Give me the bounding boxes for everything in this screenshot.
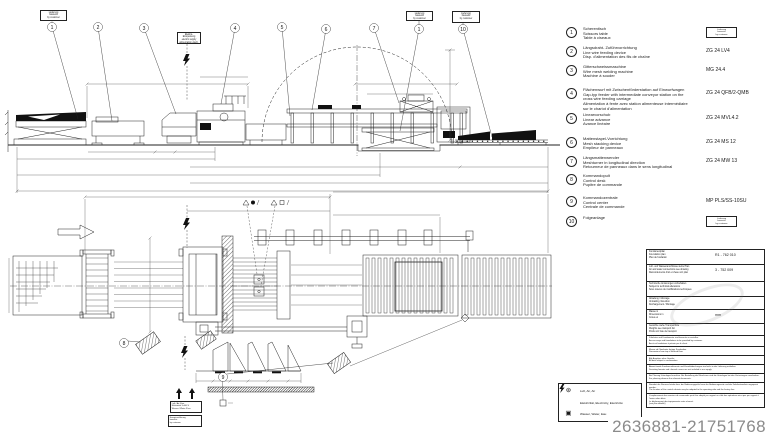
fine-print-note: Masse ab Oberkante fertiger Fussboden. D… xyxy=(647,347,764,356)
legend-item-number: 7 xyxy=(566,156,577,167)
legend-item-number: 9 xyxy=(566,196,577,207)
legend-item-type: ZG 24 LV4 xyxy=(706,48,730,54)
scissor-lift-pit xyxy=(358,128,440,152)
legend-item-number: 4 xyxy=(566,88,577,99)
legend-item: 4 Flächenwurf mit Zwischenförderstation … xyxy=(566,88,764,112)
legend-item-desc: Kommandopult Control desk Pupitre de com… xyxy=(583,174,691,188)
fine-print-note: Standort der Steuerschränke bzw. der Bed… xyxy=(647,383,764,394)
energy-note-box: Energiezuführung bauseits by customer xyxy=(168,415,202,427)
utility-label: Luft, Air, Air xyxy=(580,389,595,393)
legend-item-desc: Gitterschweissmaschine Wire mesh welding… xyxy=(583,65,691,79)
utility-label: Elektrizität, Electricity, Electricité xyxy=(580,401,623,405)
legend-item-type: ZG 24 MVL4.2 xyxy=(706,115,739,121)
title-block-row: Fundamentplan Foundation plan Plan de fo… xyxy=(647,250,764,265)
legend-item-number: 8 xyxy=(566,174,577,185)
legend-item-desc: Folgeanlage xyxy=(583,216,691,227)
air-icon: ⊛ xyxy=(564,388,573,395)
fine-print-note: Abweichende Fundamentformate und Kanalab… xyxy=(647,365,764,374)
field-label: Fundamentplan Foundation plan Plan de fo… xyxy=(649,251,715,260)
legend-item-type: ZG 24 MW 13 xyxy=(706,158,737,164)
control-desk-plan xyxy=(136,331,351,374)
legend-item: 9 Kommandozentrale Control center Centra… xyxy=(566,196,764,210)
legend-item-desc: Mattenstapel-Vorrichtung Mesh stacking d… xyxy=(583,137,691,151)
listing-number: 2636881-21751768 xyxy=(608,417,766,435)
legend-item-type: MP PLS/SS-10SU xyxy=(706,198,746,204)
legend-item: 3 Gitterschweissmaschine Wire mesh weldi… xyxy=(566,65,764,79)
balloon-label: 10 xyxy=(460,27,466,33)
stamp-box: Lieferung bauseits by customer xyxy=(706,216,737,227)
legend-item-number: 6 xyxy=(566,137,577,148)
balloon-label: 4 xyxy=(234,26,237,32)
legend-item-desc: Längsdraht- Zuführvorrichtung Line wire … xyxy=(583,46,691,60)
field-value: R1 - 762 010 xyxy=(715,253,736,257)
lightning-bolt-icon xyxy=(183,54,190,66)
plan-dimensions xyxy=(9,192,548,383)
legend-item: 7 Längsmattenwender Meshturner in longit… xyxy=(566,156,764,170)
balloons: 1 2 3 4 5 6 7 1 10 8 9 xyxy=(48,21,493,382)
scissor-table-infeed xyxy=(14,112,86,145)
fine-print-note: Alle Angaben ohne Gewähr. All data subje… xyxy=(647,356,764,365)
utility-row: ⊛ Luft, Air, Air xyxy=(559,386,641,398)
line-wires xyxy=(114,262,183,308)
foundation-strip-hatch xyxy=(208,387,314,392)
legend-item-desc: Längsmattenwender Meshturner in longitud… xyxy=(583,156,691,170)
outfeed-conveyor-elevation xyxy=(455,130,548,145)
stamp-box: Lieferung bauseits by customer xyxy=(40,10,67,21)
fine-print-note: Bei Planung Unterlagen beachten. Bei Bes… xyxy=(647,374,764,383)
stamp-box: Lieferung bauseits by customer xyxy=(452,11,480,23)
title-block: Fundamentplan Foundation plan Plan de fo… xyxy=(646,249,765,408)
legend-item: 5 Linearvorschub Linear advance Avance l… xyxy=(566,113,764,127)
balloon-label: 2 xyxy=(97,25,100,31)
mesh-table-plan xyxy=(13,256,82,315)
stacking-gantry xyxy=(287,105,467,143)
legend-item-number: 3 xyxy=(566,65,577,76)
line-wire-feeder xyxy=(92,117,144,145)
flow-arrow xyxy=(58,225,94,239)
technical-drawing: 1 2 3 4 5 6 7 1 10 8 9 xyxy=(0,0,565,435)
balloon-label: 1 xyxy=(51,25,54,31)
legend-item-desc: Kommandozentrale Control center Centrale… xyxy=(583,196,691,210)
lightning-bolt-icon xyxy=(183,218,190,230)
roller-conveyor-1 xyxy=(363,255,458,316)
utility-row: Elektrizität, Electricity, Electricité xyxy=(559,397,641,409)
elevation-view xyxy=(5,44,560,156)
legend-item-type: ZG 24 MS 12 xyxy=(706,139,736,145)
legend-item-desc: Flächenwurf mit Zwischenförderstation au… xyxy=(583,88,691,112)
water-icon: ▣ xyxy=(564,411,573,418)
legend-item-number: 5 xyxy=(566,113,577,124)
roller-conveyor-2 xyxy=(462,255,551,318)
stamp-box: Elektro-Einspeisung electric supply alim… xyxy=(177,32,201,44)
legend-item-type: ZG 24 QFB/2-QMB xyxy=(706,90,749,96)
legend-item-desc: Scherentisch Scissors table Table à cise… xyxy=(583,27,691,41)
legend-item-desc: Linearvorschub Linear advance Avance lin… xyxy=(583,113,691,127)
legend-item: 1 Scherentisch Scissors table Table à ci… xyxy=(566,27,764,41)
legend-item: 10 Folgeanlage Lieferung bauseits by cus… xyxy=(566,216,764,227)
lightning-bolt-icon xyxy=(181,346,188,358)
balloon-label: 7 xyxy=(373,26,376,32)
legend-item-number: 2 xyxy=(566,46,577,57)
legend-item-number: 1 xyxy=(566,27,577,38)
field-value: 3 - 752 009 xyxy=(715,268,733,272)
welding-line-hatch xyxy=(222,236,233,333)
balloon-label: 6 xyxy=(325,27,328,33)
scanned-layout-drawing: 1 2 3 4 5 6 7 1 10 8 9 Lieferung bauseit… xyxy=(0,0,768,435)
balloon-label: 1 xyxy=(418,27,421,33)
energy-note-box: Luft / Air 6 bar Elektrizität 3×400 V Wa… xyxy=(170,401,202,413)
mesh-stacks-profile xyxy=(196,342,301,373)
field-label: Luft- und Wasseranschlüsse siehe Plan Ai… xyxy=(649,266,715,275)
fine-print-note: Zufahrten und Fundamente sind bauseits z… xyxy=(647,336,764,347)
title-block-row: Gewichte siehe Transportliste Weights se… xyxy=(647,324,764,336)
balloon-label: 8 xyxy=(123,341,126,347)
line-wire-feeder-plan xyxy=(80,250,114,318)
wire-payoff xyxy=(162,113,196,143)
linear-advance-track xyxy=(215,327,347,331)
transfer-lines xyxy=(291,265,362,305)
parts-legend: 1 Scherentisch Scissors table Table à ci… xyxy=(566,20,766,245)
control-pendant xyxy=(347,316,367,348)
gap-feeder-elevation xyxy=(246,124,286,145)
legend-item: 8 Kommandopult Control desk Pupitre de c… xyxy=(566,174,764,188)
stamp-box: Lieferung bauseits by customer xyxy=(706,27,737,38)
balloon-label: 3 xyxy=(143,26,146,32)
welding-machine-plan xyxy=(179,247,227,335)
legend-item-type: MG 24.4 xyxy=(706,67,725,73)
stamp-box: Lieferung bauseits by customer xyxy=(406,11,433,21)
up-arrows xyxy=(176,388,195,399)
legend-item: 6 Mattenstapel-Vorrichtung Mesh stacking… xyxy=(566,137,764,151)
welding-machine-elevation xyxy=(197,96,246,145)
utility-label: Wasser, Water, Eau xyxy=(580,412,606,416)
balloon-label: 5 xyxy=(281,25,284,31)
balloon-label: 9 xyxy=(222,375,225,381)
title-block-row: Luft- und Wasseranschlüsse siehe Plan Ai… xyxy=(647,265,764,282)
fine-print-note: L'emplacement des armoires de commande p… xyxy=(647,394,764,407)
plan-view xyxy=(10,200,552,406)
legend-item: 2 Längsdraht- Zuführvorrichtung Line wir… xyxy=(566,46,764,60)
legend-item-number: 10 xyxy=(566,216,577,227)
